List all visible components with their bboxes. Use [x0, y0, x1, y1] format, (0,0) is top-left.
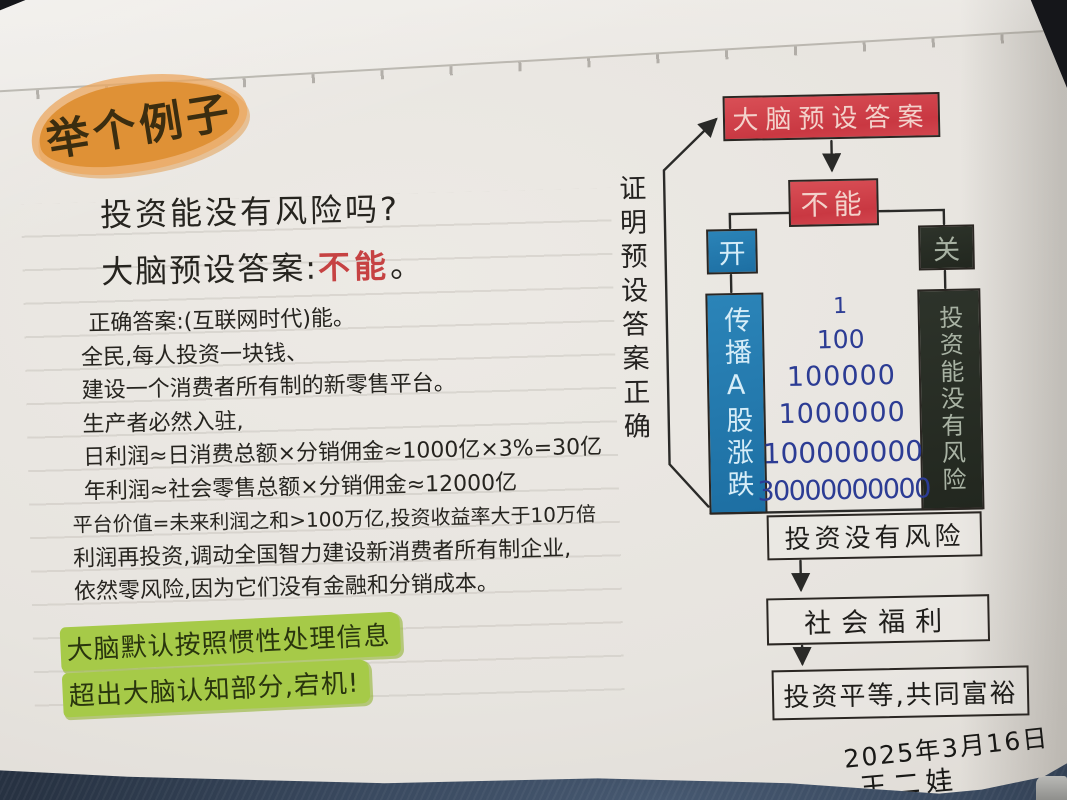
flow-box-cannot: 不能: [788, 178, 879, 227]
flow-box-no-risk: 投资没有风险: [767, 511, 983, 560]
flowchart: 证明预设答案正确 大脑预设答案 不能 开 关 传播A股涨跌 投资能没有风险 1 …: [0, 0, 1067, 800]
flow-box-switch-open: 开: [706, 229, 758, 275]
flow-box-brain-preset-answer: 大脑预设答案: [723, 92, 941, 141]
number-pyramid: 1 100 100000 1000000 100000000 300000000…: [761, 292, 922, 507]
background-object: [1036, 776, 1067, 800]
number-row: 100000: [787, 360, 897, 393]
flow-box-switch-close: 关: [918, 224, 975, 270]
number-row: 30000000000: [757, 473, 930, 507]
number-row: 1: [833, 294, 847, 319]
photo-of-notebook-page: 举个例子 投资能没有风险吗? 大脑预设答案:不能。 正确答案:(互联网时代)能。…: [0, 0, 1067, 800]
notebook-paper: 举个例子 投资能没有风险吗? 大脑预设答案:不能。 正确答案:(互联网时代)能。…: [0, 0, 1067, 800]
number-row: 100000000: [762, 434, 923, 470]
flow-box-social-welfare: 社会福利: [766, 594, 990, 645]
loop-label: 证明预设答案正确: [610, 174, 655, 495]
flow-box-common-prosperity: 投资平等,共同富裕: [772, 665, 1030, 720]
number-row: 1000000: [778, 397, 906, 430]
number-row: 100: [817, 325, 865, 355]
